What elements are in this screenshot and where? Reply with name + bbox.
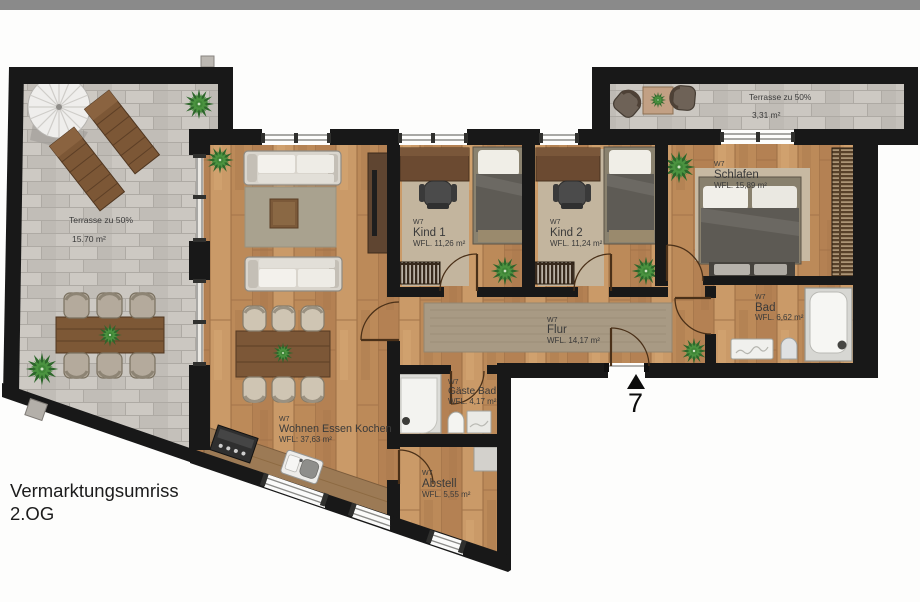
svg-text:W7: W7 <box>422 470 433 477</box>
svg-text:7: 7 <box>628 388 643 418</box>
svg-text:3,31 m²: 3,31 m² <box>752 110 781 120</box>
svg-text:WFL. 6,62 m²: WFL. 6,62 m² <box>755 313 804 322</box>
svg-text:WFL. 4,17 m²: WFL. 4,17 m² <box>448 397 497 406</box>
svg-text:W7: W7 <box>279 416 290 423</box>
svg-text:W7: W7 <box>550 219 561 226</box>
svg-text:W7: W7 <box>448 379 459 386</box>
svg-text:W7: W7 <box>755 294 766 301</box>
svg-text:Vermarktungsumriss: Vermarktungsumriss <box>10 480 179 501</box>
svg-text:Flur: Flur <box>547 324 567 336</box>
svg-text:W7: W7 <box>547 317 558 324</box>
svg-text:Kind 1: Kind 1 <box>413 227 446 239</box>
svg-text:WFL. 5,55 m²: WFL. 5,55 m² <box>422 490 471 499</box>
svg-text:W7: W7 <box>413 219 424 226</box>
svg-text:W7: W7 <box>714 161 725 168</box>
svg-text:15.70 m²: 15.70 m² <box>72 234 106 244</box>
svg-text:Schlafen: Schlafen <box>714 169 759 181</box>
svg-text:WFL. 11,26 m²: WFL. 11,26 m² <box>413 239 466 248</box>
svg-text:WFL: 37,63 m²: WFL: 37,63 m² <box>279 435 332 444</box>
svg-text:Gäste Bad: Gäste Bad <box>448 386 496 397</box>
svg-text:WFL. 15,89 m²: WFL. 15,89 m² <box>714 181 767 190</box>
svg-text:2.OG: 2.OG <box>10 503 54 524</box>
svg-text:Abstell: Abstell <box>422 478 457 490</box>
svg-text:Wohnen Essen Kochen: Wohnen Essen Kochen <box>279 423 392 435</box>
svg-text:WFL. 14,17 m²: WFL. 14,17 m² <box>547 336 600 345</box>
svg-text:Terrasse zu 50%: Terrasse zu 50% <box>69 215 133 225</box>
svg-text:WFL. 11,24 m²: WFL. 11,24 m² <box>550 239 603 248</box>
svg-text:Kind 2: Kind 2 <box>550 227 583 239</box>
svg-text:Terrasse zu 50%: Terrasse zu 50% <box>749 92 812 102</box>
